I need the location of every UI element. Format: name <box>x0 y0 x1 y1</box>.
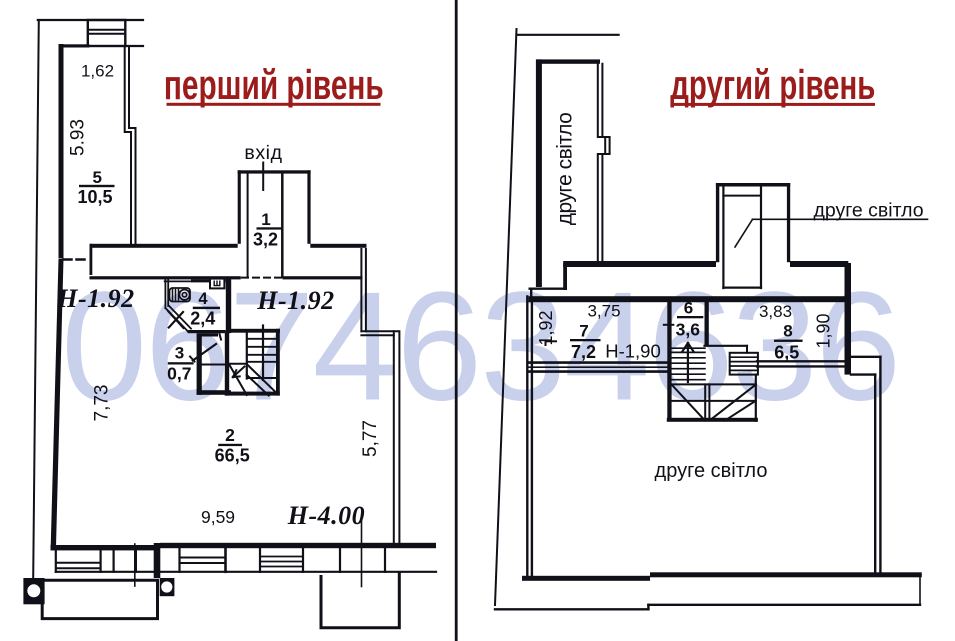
svg-text:8: 8 <box>783 322 792 341</box>
svg-text:6: 6 <box>684 299 693 318</box>
svg-text:3,75: 3,75 <box>587 302 620 321</box>
svg-text:3,6: 3,6 <box>676 320 701 340</box>
svg-text:66,5: 66,5 <box>215 446 250 466</box>
svg-text:друге світло: друге світло <box>655 460 768 482</box>
svg-text:4: 4 <box>198 290 208 308</box>
svg-text:5: 5 <box>93 168 102 187</box>
svg-text:3: 3 <box>175 344 184 363</box>
svg-text:перший рівень: перший рівень <box>164 61 384 108</box>
svg-text:2: 2 <box>225 425 235 445</box>
svg-text:другий рівень: другий рівень <box>670 61 875 109</box>
svg-text:друге світло: друге світло <box>813 200 923 222</box>
svg-text:7,73: 7,73 <box>92 385 113 422</box>
svg-text:10,5: 10,5 <box>77 187 112 207</box>
svg-text:Н-1,90: Н-1,90 <box>605 341 661 362</box>
svg-text:6,5: 6,5 <box>774 343 799 363</box>
svg-text:Н-1.92: Н-1.92 <box>256 286 334 315</box>
svg-text:Н-4.00: Н-4.00 <box>287 501 365 530</box>
svg-text:1,92: 1,92 <box>536 310 556 345</box>
svg-text:3,83: 3,83 <box>759 302 792 321</box>
svg-text:друге світло: друге світло <box>554 113 577 226</box>
svg-text:9,59: 9,59 <box>201 507 235 527</box>
svg-text:2,4: 2,4 <box>190 309 215 329</box>
svg-text:3,2: 3,2 <box>253 230 278 250</box>
svg-text:1,62: 1,62 <box>81 62 114 81</box>
svg-text:5.93: 5.93 <box>68 119 89 156</box>
svg-text:5,77: 5,77 <box>360 420 381 457</box>
svg-text:0,7: 0,7 <box>167 364 191 384</box>
svg-text:Н-1.92: Н-1.92 <box>56 284 134 313</box>
svg-text:7,2: 7,2 <box>571 342 596 362</box>
svg-text:7: 7 <box>579 322 588 341</box>
svg-text:1,90: 1,90 <box>814 313 834 348</box>
svg-text:1: 1 <box>261 210 270 229</box>
svg-text:вхід: вхід <box>244 142 282 164</box>
